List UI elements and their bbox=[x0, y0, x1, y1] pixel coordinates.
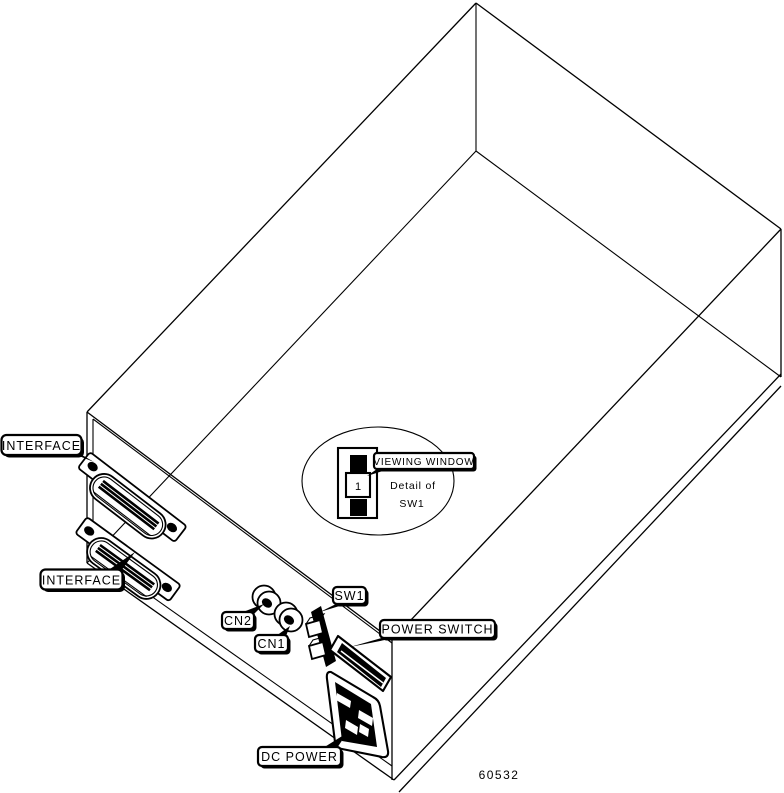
label-text: INTERFACE bbox=[2, 439, 81, 453]
label-text: INTERFACE bbox=[42, 574, 121, 588]
edge-top-right bbox=[476, 3, 781, 229]
figure-number: 60532 bbox=[479, 768, 520, 782]
label-interface-top: INTERFACE bbox=[2, 435, 85, 458]
label-power-switch: POWER SWITCH bbox=[380, 620, 498, 641]
label-dc-power: DC POWER bbox=[258, 747, 344, 769]
label-interface-bottom: INTERFACE bbox=[41, 570, 126, 593]
rear-panel-diagram: 1 Detail of SW1 bbox=[0, 0, 784, 793]
edge-bottom-right-lip bbox=[399, 386, 781, 792]
detail-switch-bottom-block bbox=[350, 499, 367, 516]
detail-switch-top-block bbox=[350, 455, 367, 472]
hidden-edges bbox=[87, 3, 781, 563]
label-text: SW1 bbox=[334, 589, 364, 603]
enclosure-drawing: 1 Detail of SW1 bbox=[0, 0, 784, 793]
enclosure-outline bbox=[87, 3, 781, 792]
label-text: CN2 bbox=[224, 614, 252, 628]
label-viewing-window: VIEWING WINDOW bbox=[373, 453, 476, 472]
sw1-detail-callout: 1 Detail of SW1 bbox=[302, 427, 454, 535]
label-text: CN1 bbox=[257, 637, 285, 651]
label-cn2: CN2 bbox=[222, 612, 257, 632]
edge-hidden-bottom-right bbox=[476, 151, 781, 377]
label-text: VIEWING WINDOW bbox=[373, 457, 474, 468]
edge-top-left bbox=[87, 3, 476, 412]
sw1-switch bbox=[306, 606, 336, 667]
label-text: POWER SWITCH bbox=[382, 623, 494, 637]
label-cn1: CN1 bbox=[255, 635, 291, 655]
sw1-actuator bbox=[309, 642, 326, 659]
label-text: DC POWER bbox=[261, 750, 338, 764]
sw1-actuator bbox=[306, 620, 323, 637]
detail-switch-digit: 1 bbox=[355, 481, 361, 493]
label-sw1: SW1 bbox=[333, 587, 369, 607]
detail-caption-line2: SW1 bbox=[399, 498, 424, 510]
detail-caption-line1: Detail of bbox=[390, 480, 436, 492]
